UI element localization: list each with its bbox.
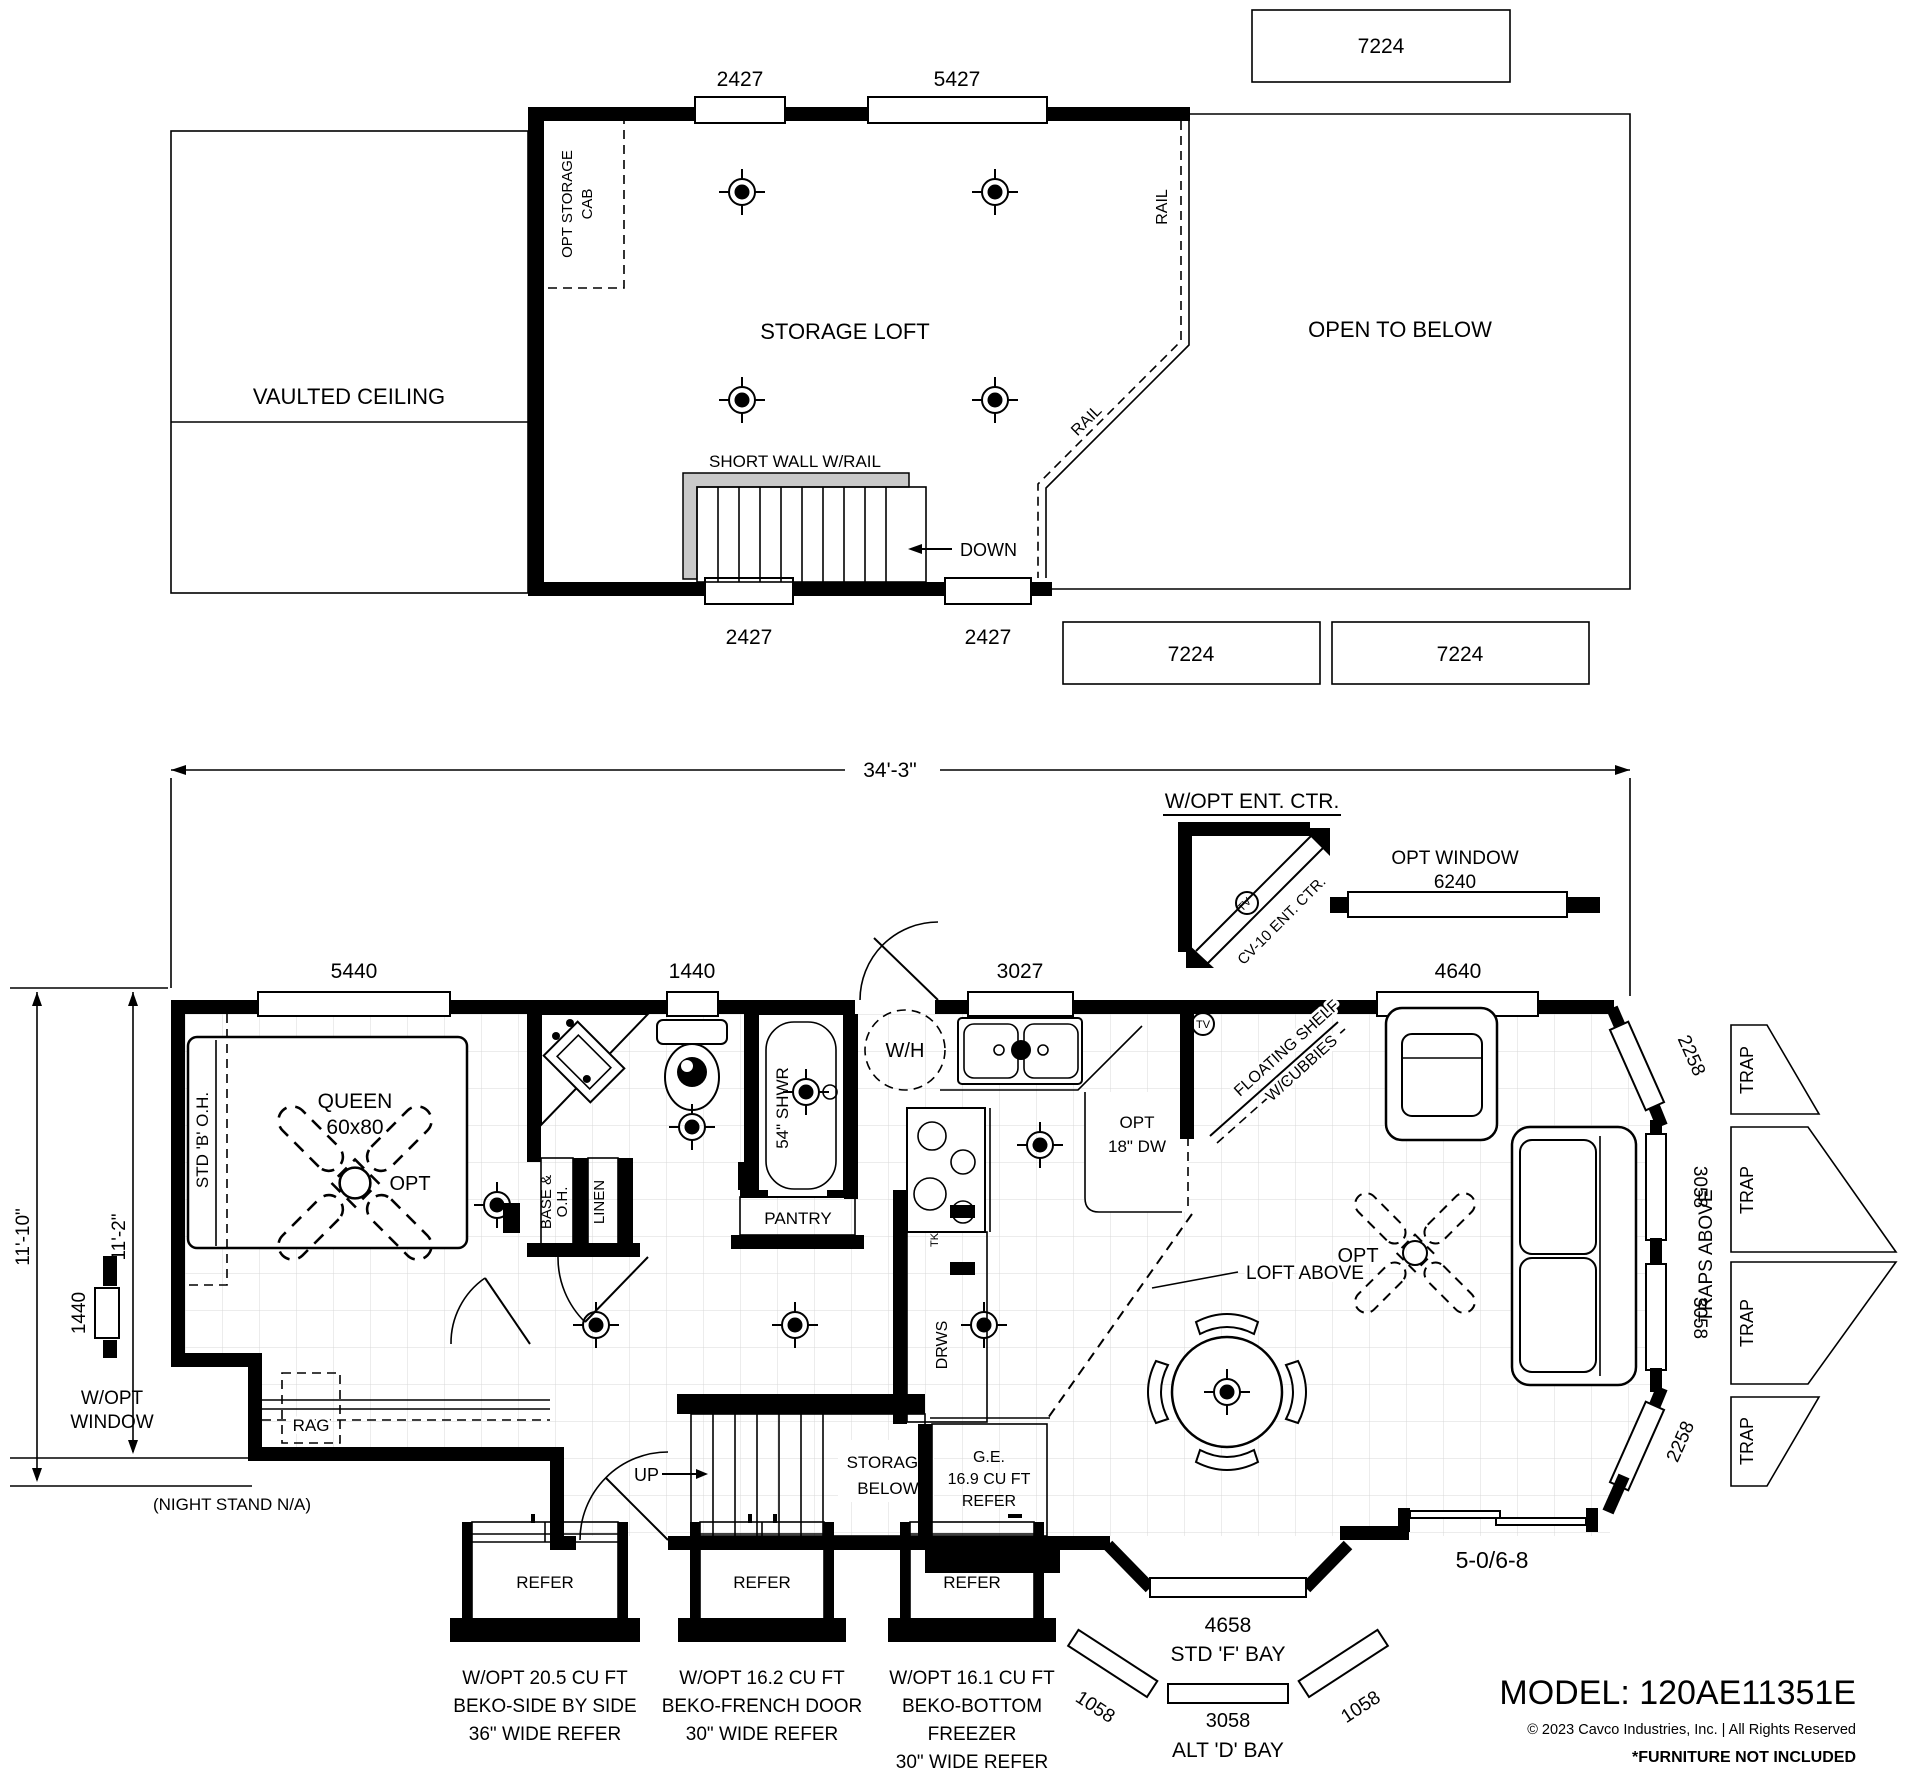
ent-ctr-label: W/OPT ENT. CTR.: [1165, 790, 1340, 813]
loft-stairs: [697, 487, 926, 582]
trap-label-1: TRAP: [1737, 1046, 1757, 1094]
w-opt-window-label-1: W/OPT: [81, 1388, 144, 1409]
toilet-seat-detail: [681, 1060, 693, 1072]
std-b-oh-label: STD 'B' O.H.: [193, 1092, 212, 1188]
dim-34-3-label: 34'-3": [863, 759, 917, 782]
model-number: MODEL: 120AE11351E: [1499, 1674, 1856, 1712]
fridge-caption: FREEZER: [928, 1724, 1017, 1745]
drws-label: DRWS: [934, 1321, 951, 1370]
bed-label-1: QUEEN: [318, 1090, 393, 1113]
rail-label-side: RAIL: [1154, 189, 1171, 225]
dw-label-2: 18" DW: [1108, 1137, 1166, 1156]
traps-above-label: TRAPS ABOVE: [1696, 1189, 1717, 1322]
tv-wall: [1180, 1014, 1194, 1139]
dim-1440: 1440: [669, 960, 716, 983]
d-bay-dim-right: 1058: [1338, 1687, 1385, 1728]
loft-dim-5427-top: 5427: [934, 68, 981, 91]
patio-door-panel: [1410, 1511, 1500, 1518]
short-wall-rail: [683, 473, 909, 579]
loft-wall-bottom-1: [528, 582, 705, 596]
loft-dim-2427-bottom-1: 2427: [726, 626, 773, 649]
vaulted-ceiling-label: VAULTED CEILING: [253, 384, 445, 409]
fridge-caption: BEKO-BOTTOM: [902, 1696, 1042, 1717]
main-plan: 34'-3" W/OPT ENT. CTR. TV CV-10 ENT. CTR…: [10, 759, 1896, 1762]
opt-window-label-2: 6240: [1434, 872, 1476, 893]
linen-label: LINEN: [591, 1180, 608, 1224]
fridge-option-1: REFER W/OPT 20.5 CU FT BEKO-SIDE BY SIDE…: [450, 1514, 640, 1745]
down-arrow-head: [908, 544, 922, 554]
loft-wall-bottom-3: [1031, 582, 1052, 596]
open-to-below-label: OPEN TO BELOW: [1308, 317, 1492, 342]
dw-label-1: OPT: [1120, 1113, 1155, 1132]
dim-11-2-label: 11'-2": [109, 1214, 130, 1261]
trap-label-2: TRAP: [1737, 1166, 1757, 1214]
vaulted-ceiling-area: [171, 131, 528, 593]
fridge-label: REFER: [516, 1573, 574, 1592]
dim-4640: 4640: [1435, 960, 1482, 983]
dim-2258-bottom: 2258: [1663, 1418, 1699, 1465]
fridge-base: [450, 1618, 640, 1642]
sofa-cushion: [1520, 1140, 1596, 1254]
bay-window-3058-bottom: [1646, 1264, 1666, 1370]
sofa-cushion: [1520, 1258, 1596, 1372]
fridge-caption: BEKO-SIDE BY SIDE: [453, 1696, 636, 1717]
toilet-tank: [657, 1020, 727, 1044]
fridge-label: REFER: [943, 1573, 1001, 1592]
short-wall-label: SHORT WALL W/RAIL: [709, 452, 881, 471]
faucet-dot: [552, 1032, 560, 1040]
storage-loft-label: STORAGE LOFT: [760, 319, 930, 344]
d-bay-window-left: [1068, 1630, 1157, 1697]
furniture-note: *FURNITURE NOT INCLUDED: [1632, 1749, 1856, 1766]
side-entry-door: [860, 922, 938, 1000]
opt-side-window: [103, 1340, 117, 1358]
w-opt-window-label-2: WINDOW: [70, 1412, 153, 1433]
opt-window-label-1: OPT WINDOW: [1391, 848, 1518, 869]
fridge-caption: W/OPT 20.5 CU FT: [462, 1668, 628, 1689]
fridge-caption: 30" WIDE REFER: [896, 1752, 1048, 1773]
loft-wall-top-3: [1047, 107, 1190, 121]
toilet-seat: [677, 1057, 707, 1087]
d-bay-dim-mid: 3058: [1206, 1710, 1251, 1732]
loft-window-5427-top: [868, 97, 1047, 123]
shower-label: 54" SHWR: [773, 1067, 792, 1149]
opt-window-6240: OPT WINDOW 6240: [1330, 848, 1600, 917]
ceiling-light-icon: [719, 169, 765, 215]
loft-dim-2427-top: 2427: [717, 68, 764, 91]
queen-bed: [188, 1037, 467, 1248]
loft-size-box-3-label: 7224: [1437, 643, 1484, 666]
ceiling-light-icon: [972, 169, 1018, 215]
patio-door-dim: 5-0/6-8: [1456, 1547, 1529, 1573]
down-label: DOWN: [960, 540, 1017, 560]
fridge-caption: 30" WIDE REFER: [686, 1724, 838, 1745]
fridge-label: REFER: [733, 1573, 791, 1592]
ge-label-3: REFER: [962, 1493, 1016, 1510]
loft-wall-left: [528, 107, 544, 596]
dim-1440-side: 1440: [69, 1292, 90, 1334]
d-bay-label: ALT 'D' BAY: [1172, 1739, 1284, 1762]
faucet-dot: [566, 1019, 574, 1027]
traps: TRAP TRAP TRAP TRAP TRAPS ABOVE: [1696, 1025, 1896, 1486]
loft-window-2427-bottom-2: [945, 578, 1031, 604]
faucet: [1011, 1040, 1031, 1060]
dim-5440: 5440: [331, 960, 378, 983]
loft-dim-2427-bottom-2: 2427: [965, 626, 1012, 649]
tk-label: TK: [929, 1232, 941, 1247]
trap-label-3: TRAP: [1737, 1299, 1757, 1347]
loft-size-box-1-label: 7224: [1358, 35, 1405, 58]
f-bay-label: STD 'F' BAY: [1171, 1643, 1286, 1666]
living-fan-opt: OPT: [1337, 1245, 1378, 1267]
loft-wall-top-1: [528, 107, 695, 121]
copyright: © 2023 Cavco Industries, Inc. | All Righ…: [1527, 1722, 1856, 1738]
storage-below-label-2: BELOW: [857, 1479, 918, 1498]
fridge-caption: W/OPT 16.2 CU FT: [679, 1668, 845, 1689]
ent-ctr-inset: W/OPT ENT. CTR. TV CV-10 ENT. CTR.: [1163, 790, 1341, 968]
fridge-base: [888, 1618, 1056, 1642]
d-bay-window-right: [1299, 1630, 1388, 1697]
dim-3027: 3027: [997, 960, 1044, 983]
open-to-below-outline: [1052, 114, 1630, 589]
armchair-seat: [1402, 1034, 1482, 1116]
ent-ctr-unit-label: CV-10 ENT. CTR.: [1234, 873, 1329, 968]
footer: MODEL: 120AE11351E © 2023 Cavco Industri…: [1499, 1674, 1856, 1766]
fan-opt-label: OPT: [389, 1173, 430, 1195]
d-bay-window-mid: [1168, 1684, 1288, 1703]
patio-door-panel: [1496, 1518, 1586, 1525]
shower: [758, 1014, 844, 1197]
f-bay-dim: 4658: [1205, 1614, 1252, 1637]
wall-jamb: [503, 1203, 520, 1233]
opt-side-window: [103, 1256, 117, 1286]
ge-label-1: G.E.: [973, 1449, 1005, 1466]
bed-label-2: 60x80: [326, 1116, 383, 1139]
loft-window-2427-top: [695, 97, 785, 123]
opt-side-window: [95, 1288, 119, 1338]
fridge-caption: 36" WIDE REFER: [469, 1724, 621, 1745]
window-3027: [968, 992, 1073, 1016]
trap-label-4: TRAP: [1737, 1417, 1757, 1465]
loft-wall-bottom-2: [793, 582, 945, 596]
wh-label: W/H: [886, 1040, 925, 1062]
up-label: UP: [634, 1465, 659, 1485]
f-bay-window: [1150, 1578, 1306, 1597]
ceiling-light-icon: [719, 377, 765, 423]
base-oh-label-1: BASE &: [538, 1175, 555, 1229]
opt-storage-cab-label-2: CAB: [579, 189, 596, 220]
dim-34-3: 34'-3": [171, 759, 1630, 996]
fridge-base: [678, 1618, 846, 1642]
loft-wall-top-2: [785, 107, 868, 121]
fridge-caption: W/OPT 16.1 CU FT: [889, 1668, 1055, 1689]
storage-below-label-1: STORAGE: [847, 1453, 930, 1472]
window-5440: [258, 992, 450, 1016]
rag-label: RAG: [293, 1416, 330, 1435]
d-bay-dim-left: 1058: [1072, 1687, 1119, 1728]
dim-2258-top: 2258: [1673, 1032, 1709, 1079]
pantry-label: PANTRY: [764, 1209, 831, 1228]
floorplan-page: 7224 VAULTED CEILING 2427 5427 2427 2427…: [0, 0, 1920, 1784]
ceiling-light-icon: [972, 377, 1018, 423]
bay-window-3058-top: [1646, 1134, 1666, 1240]
dim-11-10-label: 11'-10": [13, 1208, 34, 1266]
loft-plan: 7224 VAULTED CEILING 2427 5427 2427 2427…: [171, 10, 1630, 684]
tv-label: TV: [1196, 1019, 1211, 1031]
opt-storage-cab-label-1: OPT STORAGE: [559, 150, 576, 258]
floorplan-drawing: 7224 VAULTED CEILING 2427 5427 2427 2427…: [0, 0, 1920, 1784]
window-1440: [667, 992, 718, 1016]
fridge-caption: BEKO-FRENCH DOOR: [662, 1696, 863, 1717]
loft-stair-treads: [718, 487, 886, 582]
base-oh-label-2: O.H.: [554, 1187, 571, 1218]
night-stand-note: (NIGHT STAND N/A): [153, 1495, 311, 1514]
ge-label-2: 16.9 CU FT: [948, 1471, 1031, 1488]
loft-size-box-2-label: 7224: [1168, 643, 1215, 666]
